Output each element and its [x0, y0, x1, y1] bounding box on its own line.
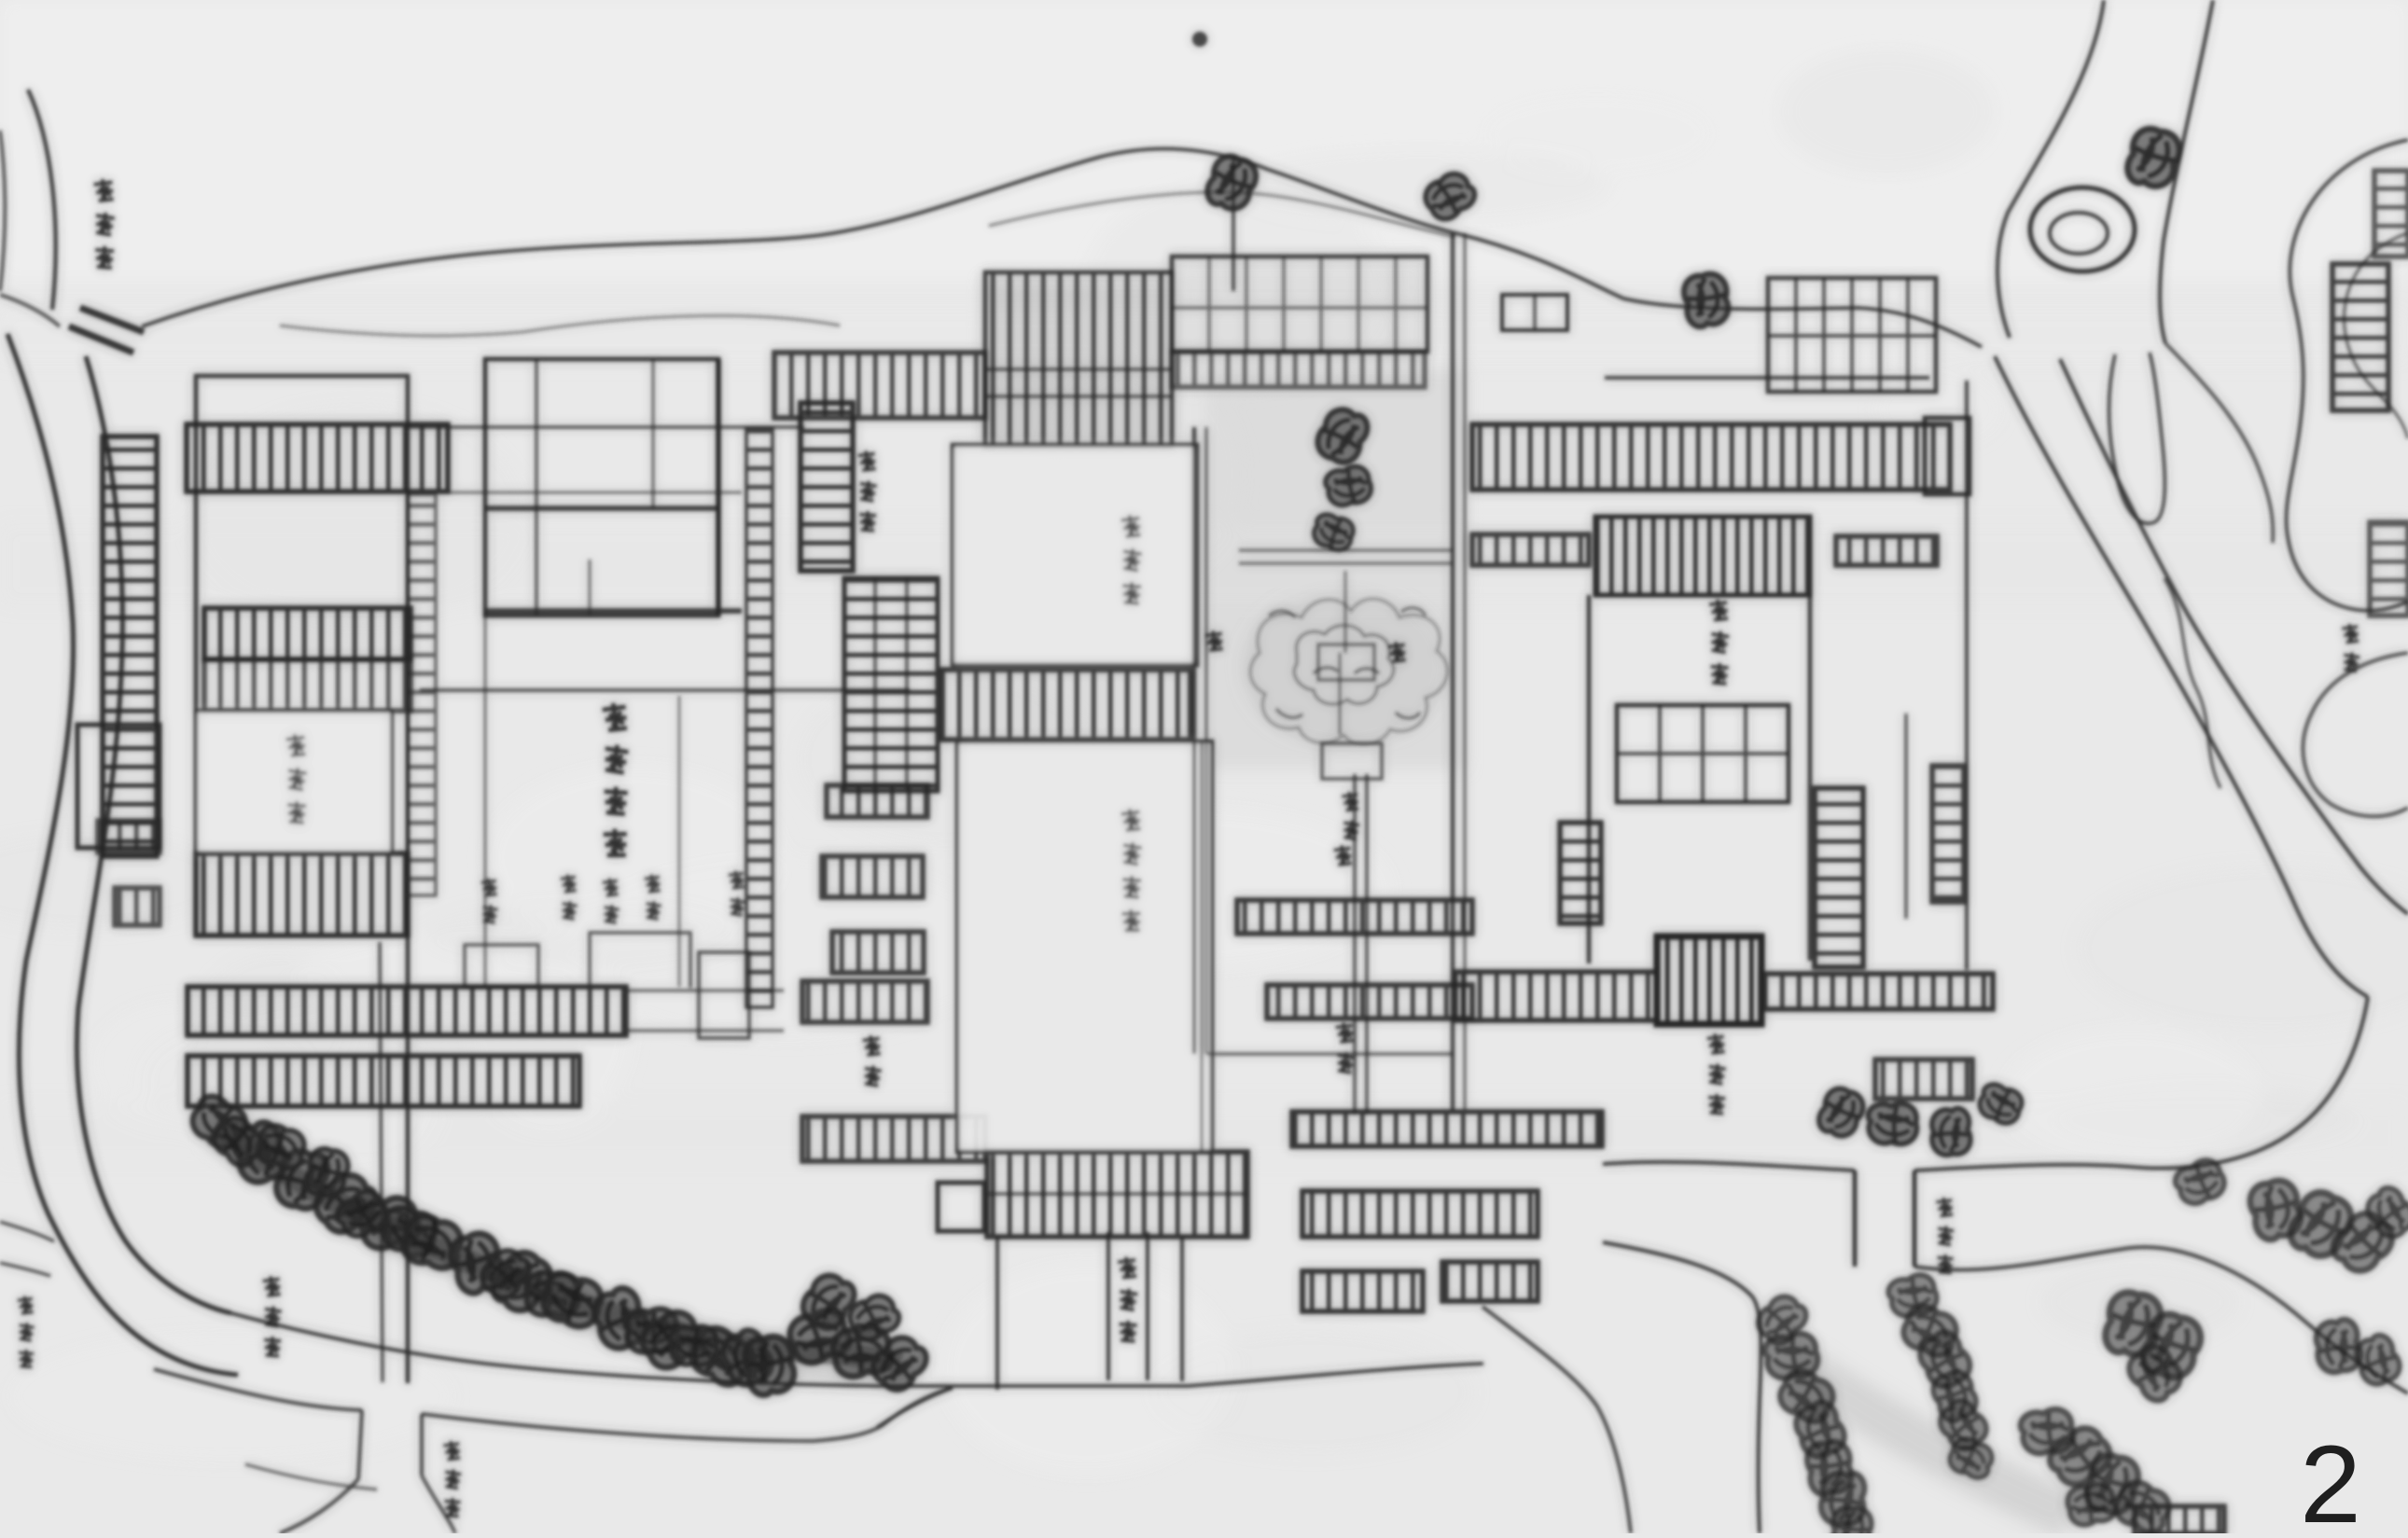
svg-text:2: 2 [2300, 1423, 2361, 1533]
